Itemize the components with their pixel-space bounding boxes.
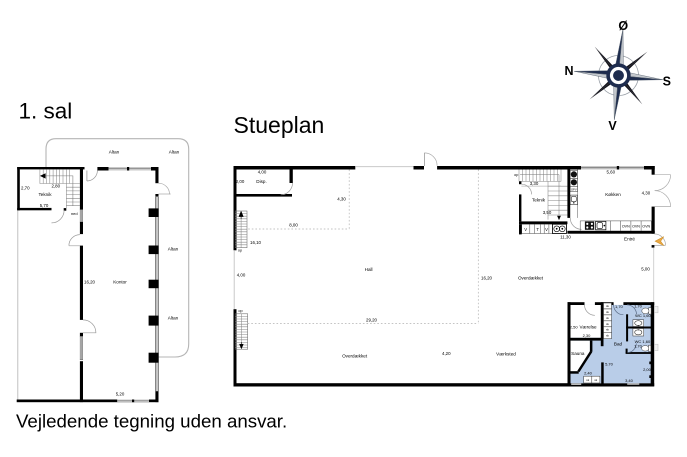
svg-text:4,30: 4,30: [642, 190, 651, 195]
svg-text:1. sal: 1. sal: [19, 99, 73, 124]
svg-text:8,00: 8,00: [289, 222, 298, 227]
svg-text:11,30: 11,30: [560, 234, 571, 239]
svg-text:Overdækket: Overdækket: [342, 353, 368, 358]
svg-text:5,60: 5,60: [607, 170, 616, 175]
svg-text:16,10: 16,10: [250, 240, 262, 245]
svg-text:16,20: 16,20: [84, 280, 96, 285]
svg-text:V: V: [545, 227, 548, 232]
svg-text:T: T: [536, 227, 539, 232]
svg-text:2,30: 2,30: [583, 333, 592, 338]
svg-text:N: N: [564, 64, 573, 78]
svg-text:Køkken: Køkken: [605, 192, 621, 197]
svg-text:4,00: 4,00: [237, 272, 246, 277]
svg-text:3,50: 3,50: [543, 210, 552, 215]
svg-text:5,70: 5,70: [40, 203, 49, 208]
svg-text:OVN: OVN: [632, 225, 640, 229]
svg-text:S: S: [663, 75, 671, 89]
svg-text:Overdækket: Overdækket: [518, 276, 544, 281]
svg-text:op: op: [238, 309, 242, 313]
svg-text:OVN: OVN: [622, 225, 630, 229]
svg-text:Ø: Ø: [618, 19, 628, 33]
svg-text:1,70: 1,70: [634, 344, 643, 349]
svg-text:Værksted: Værksted: [496, 351, 516, 356]
svg-text:Entré: Entré: [624, 236, 635, 241]
svg-text:Altan: Altan: [169, 150, 180, 155]
svg-text:2,00: 2,00: [236, 179, 245, 184]
svg-text:3,30: 3,30: [530, 181, 539, 186]
svg-text:2,80: 2,80: [52, 184, 61, 189]
svg-text:2,70: 2,70: [21, 185, 30, 190]
svg-text:Vejledende tegning uden ansvar: Vejledende tegning uden ansvar.: [16, 411, 287, 432]
svg-text:Altan: Altan: [168, 316, 179, 321]
svg-text:Stueplan: Stueplan: [234, 112, 325, 138]
svg-text:Disp.: Disp.: [256, 179, 266, 184]
svg-text:5,70: 5,70: [605, 362, 614, 367]
svg-text:5,00: 5,00: [641, 266, 650, 271]
svg-text:Altan: Altan: [109, 150, 120, 155]
svg-text:Teknik: Teknik: [532, 198, 546, 203]
svg-text:3,40: 3,40: [625, 378, 634, 383]
svg-text:Hall: Hall: [365, 267, 373, 272]
svg-text:V: V: [524, 227, 527, 232]
svg-text:Kontor: Kontor: [113, 280, 127, 285]
svg-text:op: op: [514, 173, 518, 177]
svg-text:29,20: 29,20: [366, 317, 378, 322]
svg-text:16,20: 16,20: [481, 276, 493, 281]
svg-text:4,30: 4,30: [337, 196, 346, 201]
svg-text:1,70: 1,70: [634, 304, 643, 309]
svg-text:OVN: OVN: [642, 225, 650, 229]
svg-text:WC 1,60: WC 1,60: [635, 313, 651, 318]
svg-text:ned: ned: [71, 211, 78, 216]
svg-text:1,70: 1,70: [615, 304, 624, 309]
svg-text:op: op: [238, 248, 242, 252]
svg-text:Altan: Altan: [168, 247, 179, 252]
svg-text:V: V: [608, 119, 617, 133]
svg-text:4,00: 4,00: [258, 169, 267, 174]
svg-text:5,20: 5,20: [116, 392, 125, 397]
svg-text:Teknik: Teknik: [38, 192, 52, 197]
svg-text:Sauna: Sauna: [571, 351, 585, 356]
svg-text:4,20: 4,20: [442, 351, 451, 356]
svg-text:2,50: 2,50: [570, 324, 579, 329]
svg-text:Værelse: Værelse: [579, 324, 597, 329]
svg-text:OPV: OPV: [571, 187, 577, 191]
svg-text:2,40: 2,40: [584, 371, 593, 376]
svg-text:Bad: Bad: [614, 342, 623, 347]
svg-text:2,00: 2,00: [643, 367, 652, 372]
